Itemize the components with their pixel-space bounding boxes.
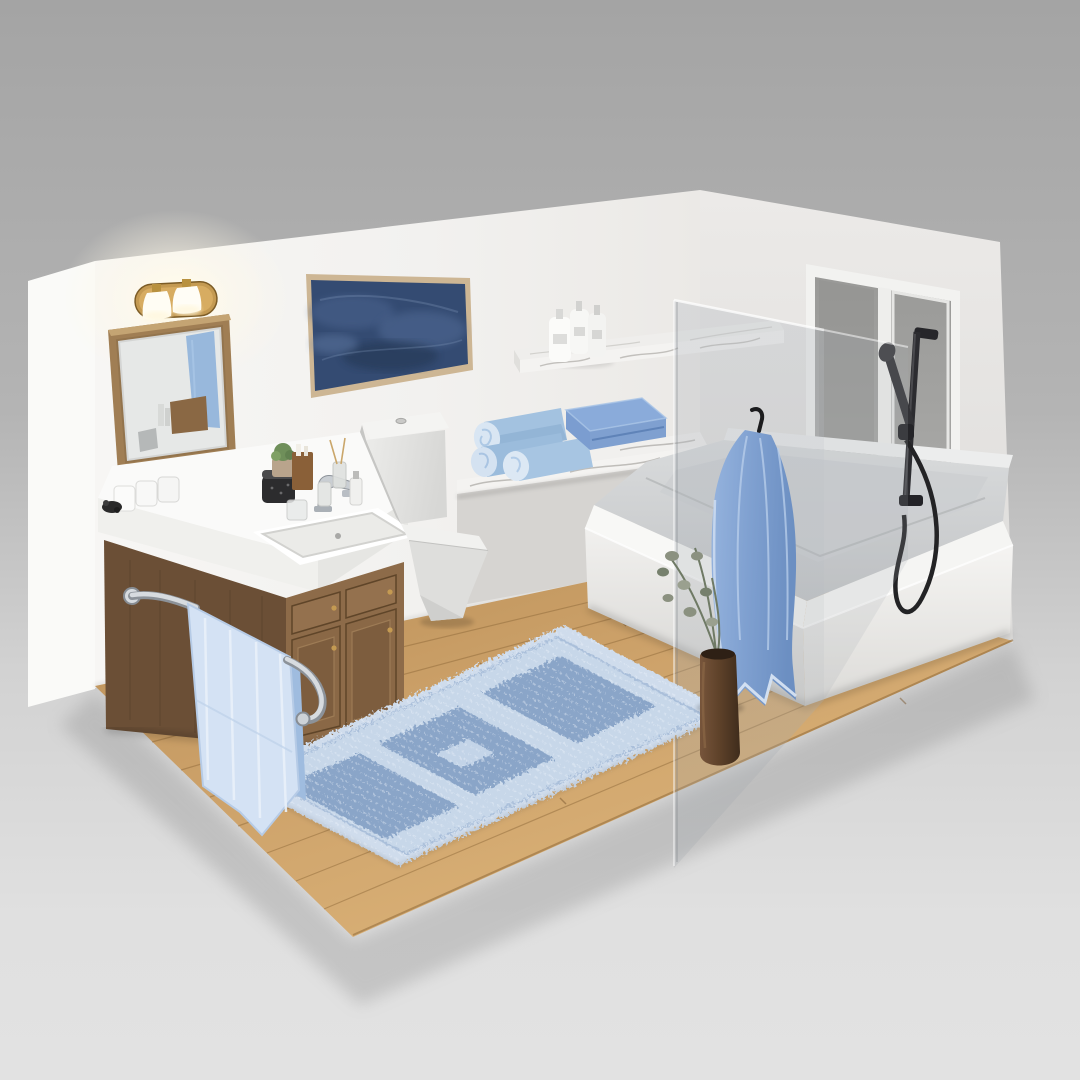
bathroom-render <box>0 0 1080 1080</box>
vase <box>700 650 740 766</box>
mirror-item-reflection <box>170 396 208 434</box>
vanity-light-sconce <box>134 279 218 321</box>
mirror <box>108 314 236 473</box>
glass-tumbler <box>287 500 307 520</box>
shampoo-bottles <box>549 301 606 362</box>
lotion-bottle <box>350 478 362 505</box>
render-canvas <box>0 0 1080 1080</box>
flush-button <box>396 418 406 423</box>
soap-bottle <box>318 482 331 506</box>
